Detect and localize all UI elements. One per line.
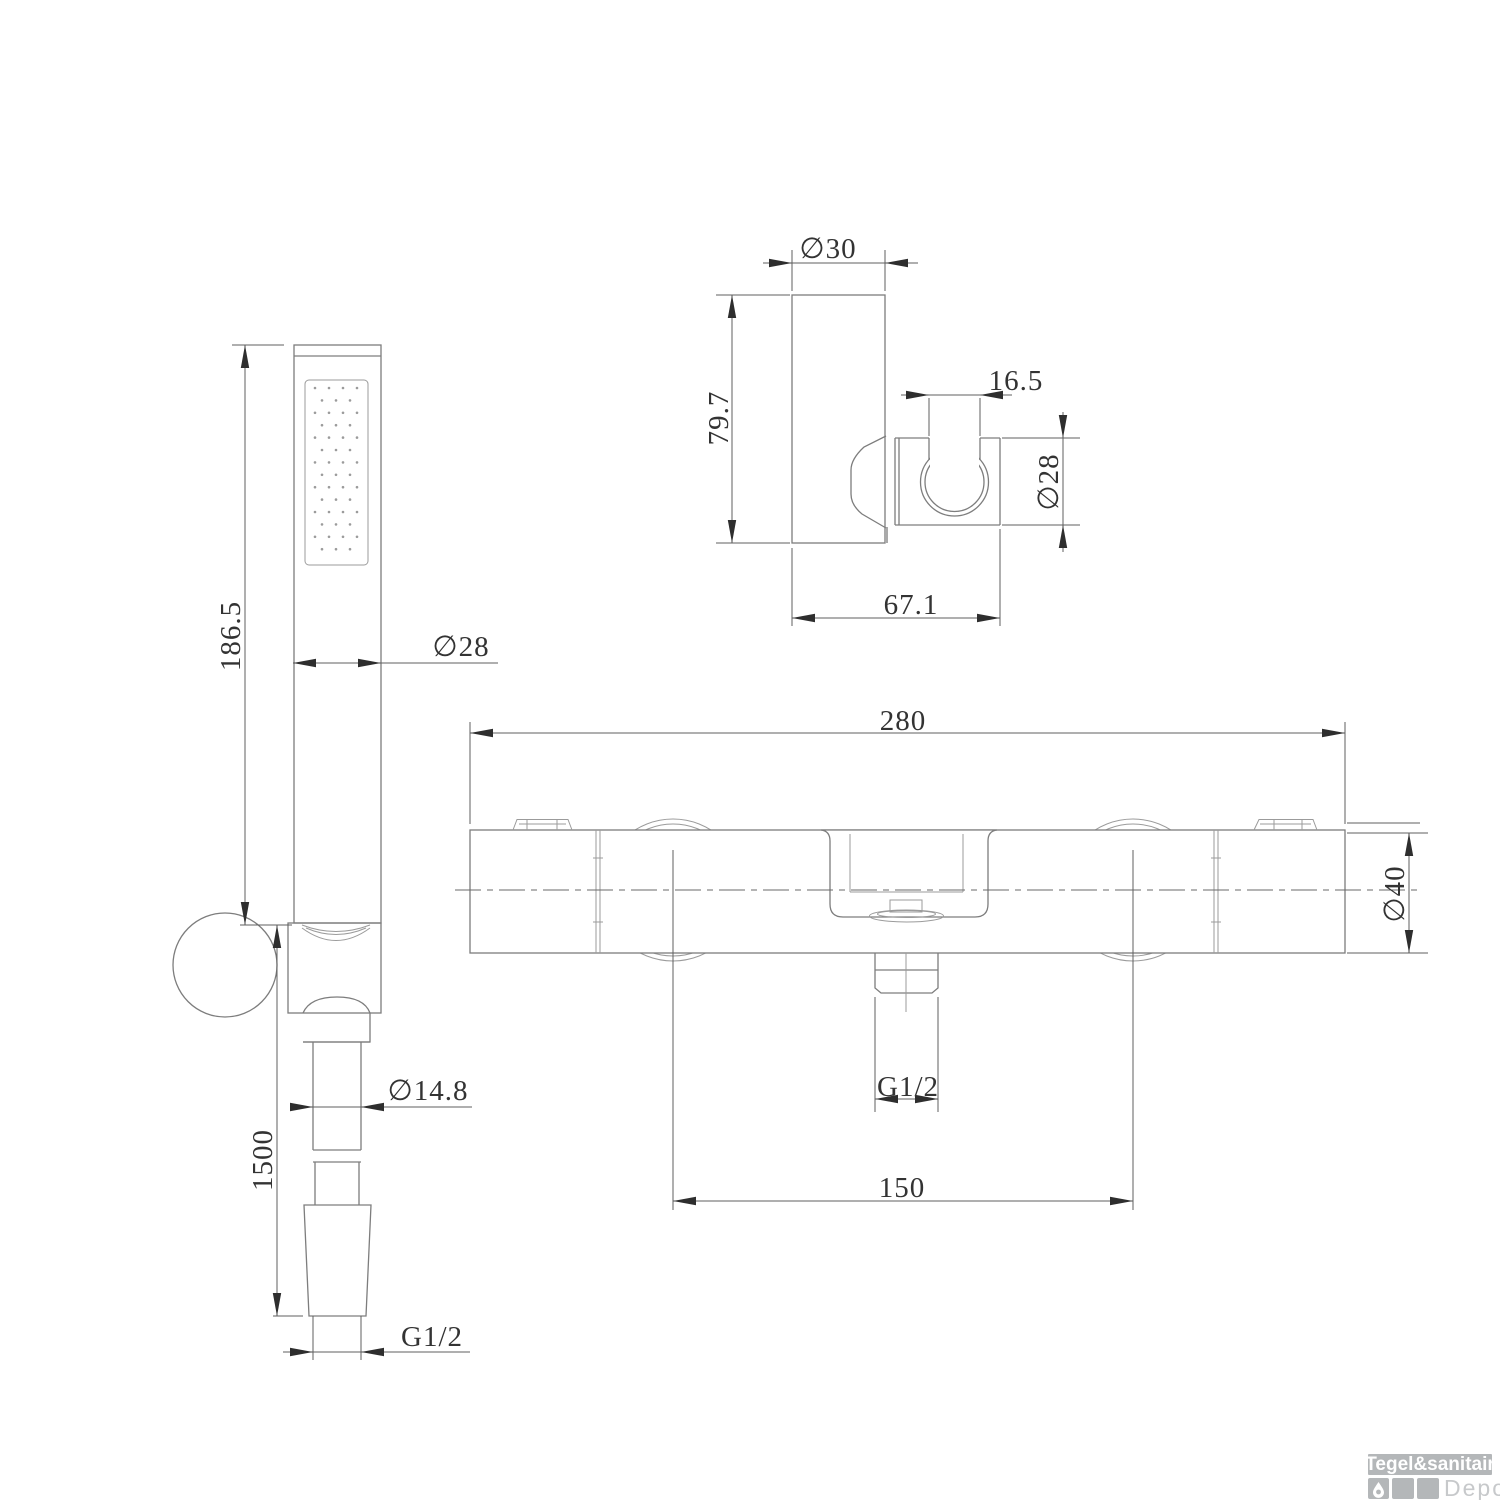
watermark: Tegel&sanitair Depot — [1365, 1454, 1500, 1500]
shower-hose — [304, 1042, 371, 1316]
handle-bracket-block — [288, 923, 381, 1013]
hand-shower-view: 186.5 ∅28 1500 ∅14.8 G1/2 — [173, 345, 498, 1360]
hose-cone-nut — [304, 1205, 371, 1316]
dim-hose-thread: G1/2 — [401, 1321, 463, 1353]
dim-hose-length: 1500 — [247, 1129, 279, 1191]
mixer-top-buttons — [513, 820, 1317, 831]
dim-mixer-width: 280 — [880, 705, 927, 737]
wall-bracket-dimensions: ∅30 79.7 16.5 ∅28 67.1 — [703, 233, 1080, 626]
dim-clip-diameter: ∅28 — [1033, 453, 1065, 510]
dim-bracket-depth: 67.1 — [884, 589, 939, 621]
dim-bracket-height: 79.7 — [703, 391, 735, 446]
hose-nut-dome — [303, 997, 370, 1042]
dim-bracket-diameter: ∅30 — [799, 233, 856, 265]
dim-mixer-body-diameter: ∅40 — [1379, 865, 1411, 922]
watermark-suffix: Depot — [1444, 1475, 1500, 1500]
wall-bracket-view: ∅30 79.7 16.5 ∅28 67.1 — [703, 233, 1080, 626]
dim-hose-diameter: ∅14.8 — [387, 1075, 468, 1107]
hand-shower-dimensions: 186.5 ∅28 1500 ∅14.8 G1/2 — [215, 345, 498, 1360]
spray-nozzle-dots — [314, 387, 359, 551]
dim-outlet-thread: G1/2 — [877, 1071, 939, 1103]
bracket-cylinder — [792, 295, 885, 543]
bracket-wedge — [851, 436, 886, 528]
dim-clip-opening: 16.5 — [989, 365, 1044, 397]
mixer-outlet — [875, 953, 938, 1012]
mixer-view: 280 ∅40 G1/2 150 — [455, 705, 1428, 1210]
dim-head-diameter: ∅28 — [432, 631, 489, 663]
watermark-brand: Tegel&sanitair — [1365, 1454, 1495, 1475]
bracket-clip — [895, 438, 1000, 525]
dim-inlet-spacing: 150 — [879, 1172, 926, 1204]
mixer-dimensions: 280 ∅40 G1/2 150 — [470, 705, 1428, 1205]
wall-disc — [173, 913, 277, 1017]
dim-hand-shower-length: 186.5 — [215, 601, 247, 671]
technical-drawing-page: 186.5 ∅28 1500 ∅14.8 G1/2 — [0, 0, 1500, 1500]
mixer-spout — [821, 830, 997, 922]
technical-drawing: 186.5 ∅28 1500 ∅14.8 G1/2 — [0, 0, 1500, 1500]
